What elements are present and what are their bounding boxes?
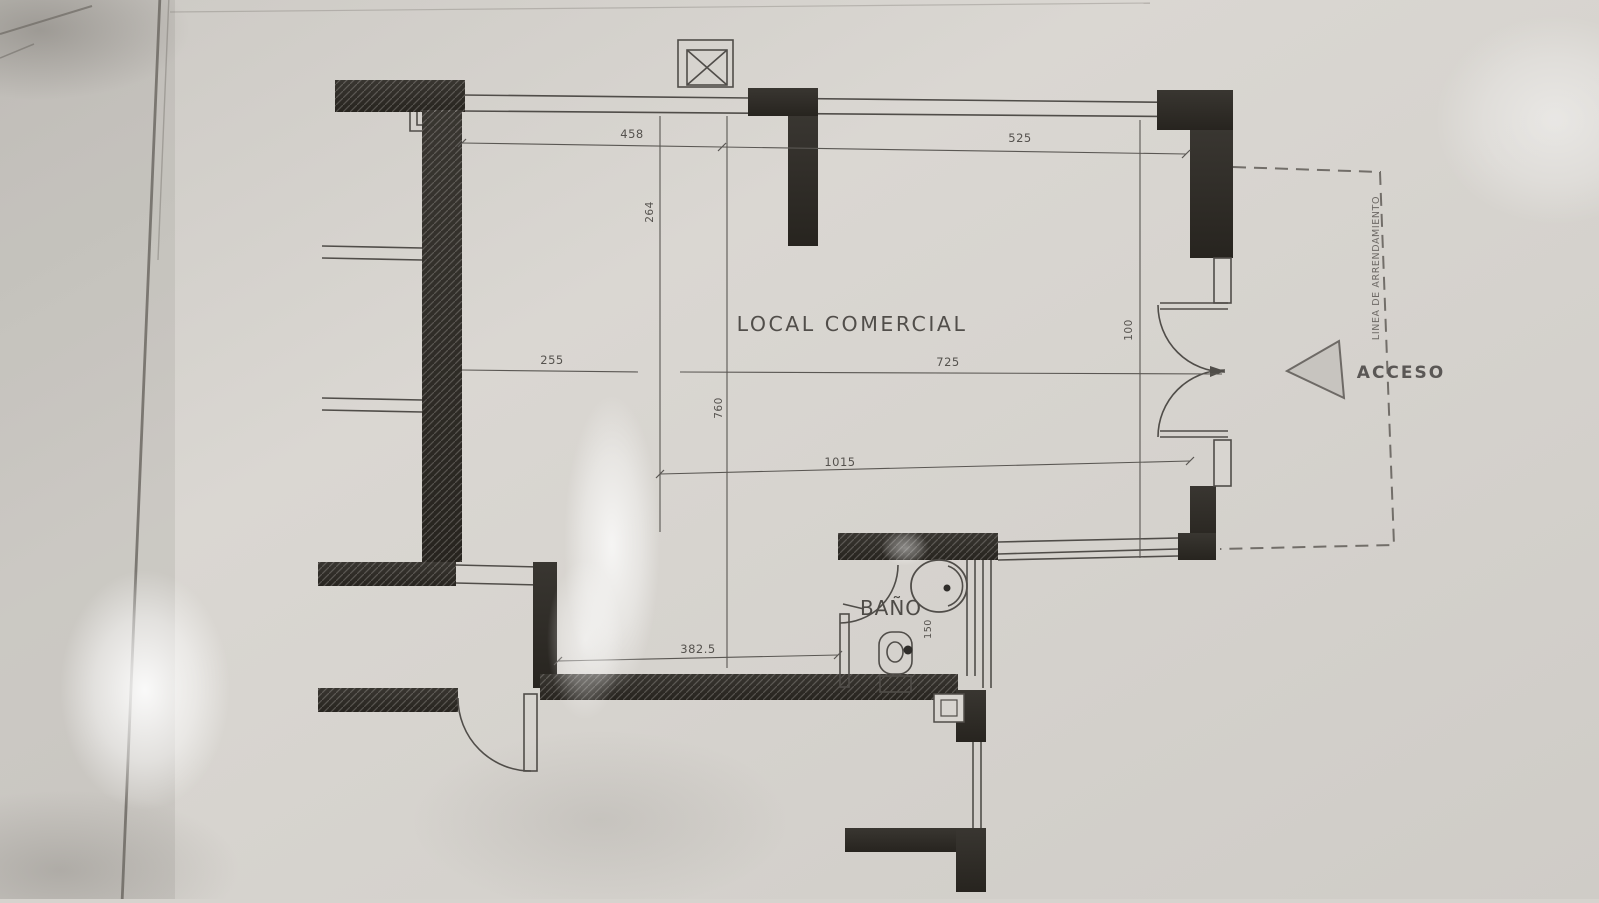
wall-top-right-h [1157, 90, 1233, 130]
dim-bath-vertical: 150 [923, 619, 934, 639]
column-outline [934, 694, 964, 722]
wall-top-block [748, 88, 818, 116]
dim-top-left: 458 [620, 127, 643, 141]
dim-entrance-vertical: 100 [1123, 319, 1135, 341]
dim-mid-left: 255 [540, 353, 563, 367]
wall-bottom-center-v2 [956, 828, 986, 892]
dim-center-vertical: 760 [713, 397, 725, 419]
floor-plan-photo: BAÑO 150 [0, 0, 1599, 899]
dim-left-vertical: 264 [644, 201, 656, 223]
dim-span-bottom: 1015 [824, 455, 855, 469]
wall-bottom-center-h [845, 828, 958, 852]
wall-bottom-right-block [1178, 533, 1216, 560]
dim-top-right: 525 [1008, 131, 1031, 145]
dim-mid-right: 725 [936, 355, 959, 369]
wall-top-stub [788, 116, 818, 246]
floor-plan-drawing: BAÑO 150 [0, 0, 1599, 899]
lease-line-label: LINEA DE ARRENDAMIENTO [1371, 196, 1382, 340]
room-title: LOCAL COMERCIAL [737, 312, 968, 336]
access-label: ACCESO [1357, 363, 1445, 383]
bathroom-label: BAÑO [860, 596, 922, 620]
dim-corridor: 382.5 [680, 642, 715, 656]
wall-top-right-v [1190, 130, 1233, 258]
